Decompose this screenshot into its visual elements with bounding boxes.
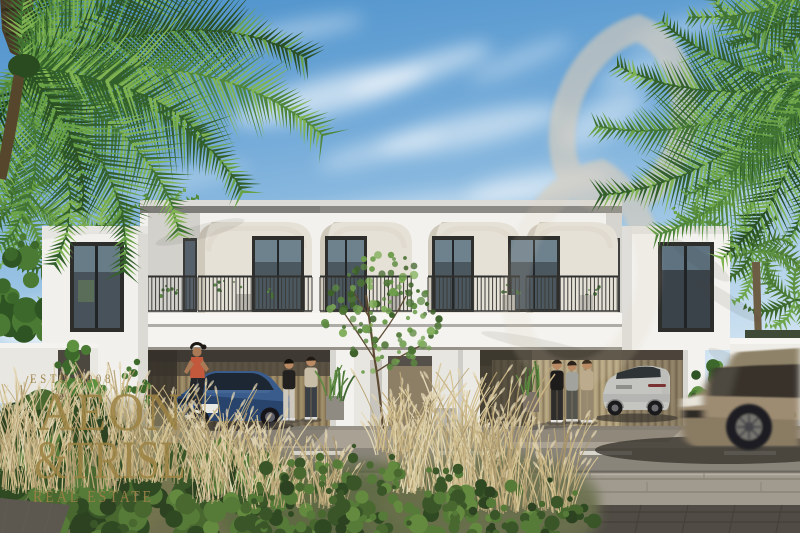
svg-text:REAL ESTATE: REAL ESTATE — [33, 487, 154, 506]
svg-text:&TRISL: &TRISL — [34, 430, 186, 490]
